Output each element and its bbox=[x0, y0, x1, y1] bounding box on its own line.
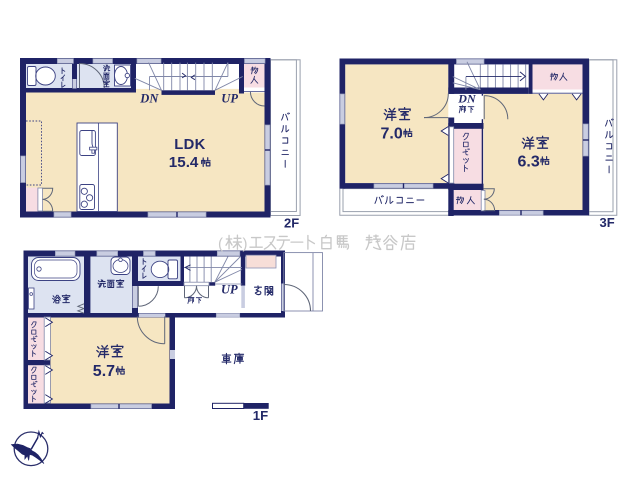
svg-text:UP: UP bbox=[221, 283, 238, 297]
svg-text:LDK: LDK bbox=[174, 137, 205, 153]
svg-text:2F: 2F bbox=[284, 216, 299, 231]
svg-text:5.7: 5.7 bbox=[93, 363, 115, 380]
svg-text:UP: UP bbox=[221, 92, 238, 106]
svg-text:DN: DN bbox=[457, 91, 477, 105]
svg-text:(: ( bbox=[218, 236, 223, 253]
svg-text:6.3: 6.3 bbox=[518, 153, 540, 170]
svg-text:1F: 1F bbox=[253, 408, 268, 423]
svg-text:15.4: 15.4 bbox=[169, 154, 199, 171]
svg-text:7.0: 7.0 bbox=[381, 126, 403, 143]
svg-text:3F: 3F bbox=[600, 215, 615, 230]
svg-text:): ) bbox=[243, 236, 248, 253]
svg-text:DN: DN bbox=[139, 92, 159, 106]
